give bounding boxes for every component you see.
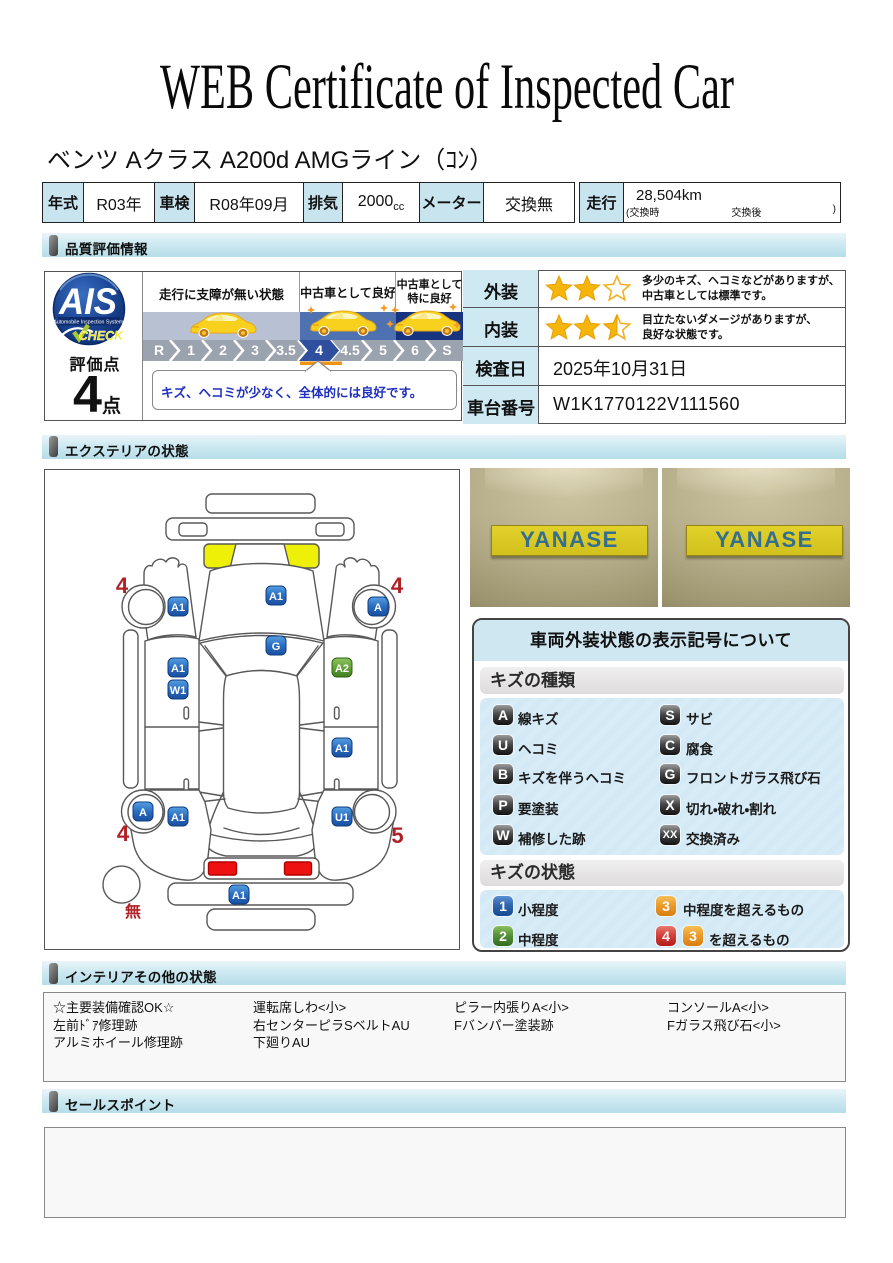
svg-text:A1: A1 <box>335 743 349 755</box>
svg-text:4: 4 <box>116 573 129 598</box>
svg-text:W1: W1 <box>170 685 187 697</box>
svg-text:4.5: 4.5 <box>340 342 360 358</box>
svg-text:A1: A1 <box>171 812 185 824</box>
svg-text:A: A <box>139 807 147 819</box>
svg-text:A: A <box>374 602 382 614</box>
svg-text:3: 3 <box>251 342 259 358</box>
svg-text:4: 4 <box>391 573 404 598</box>
svg-text:S: S <box>442 342 451 358</box>
svg-text:6: 6 <box>411 342 419 358</box>
svg-text:Automobile Inspection System,: Automobile Inspection System, <box>53 320 124 326</box>
svg-text:CHECK: CHECK <box>79 329 124 343</box>
svg-text:3.5: 3.5 <box>276 342 296 358</box>
svg-text:G: G <box>272 641 281 653</box>
svg-text:5: 5 <box>379 342 387 358</box>
svg-text:5: 5 <box>391 823 403 848</box>
svg-text:A1: A1 <box>269 591 283 603</box>
svg-text:4: 4 <box>117 821 130 846</box>
svg-text:WEB Certificate of Inspected C: WEB Certificate of Inspected Car <box>160 51 734 123</box>
svg-text:1: 1 <box>187 342 195 358</box>
svg-text:4: 4 <box>315 342 323 358</box>
svg-text:AIS: AIS <box>58 281 117 322</box>
svg-text:2: 2 <box>219 342 227 358</box>
svg-text:A1: A1 <box>171 663 185 675</box>
svg-text:A1: A1 <box>171 602 185 614</box>
svg-text:R: R <box>154 342 164 358</box>
svg-text:無: 無 <box>125 902 141 921</box>
svg-text:A2: A2 <box>335 663 349 675</box>
svg-text:A1: A1 <box>232 890 246 902</box>
svg-text:U1: U1 <box>335 812 349 824</box>
